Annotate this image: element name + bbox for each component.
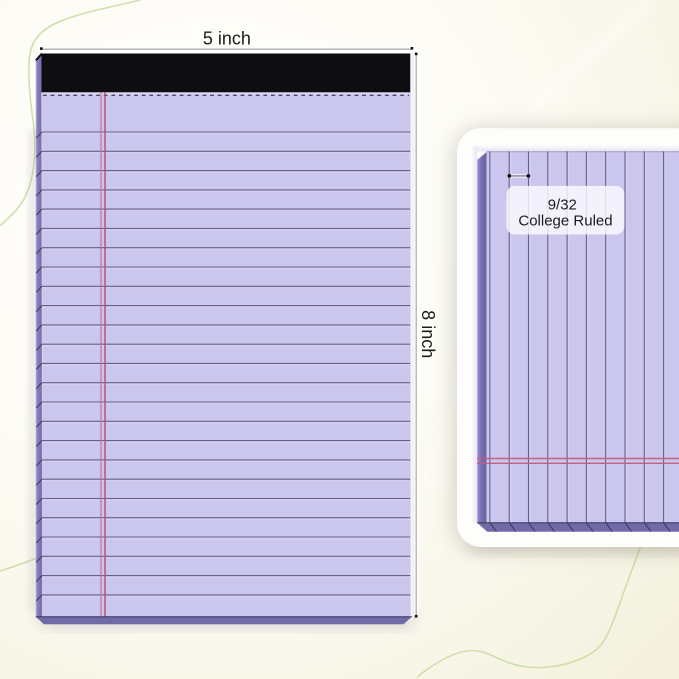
svg-text:5 inch: 5 inch (203, 29, 251, 49)
svg-text:College Ruled: College Ruled (518, 213, 612, 230)
svg-text:9/32: 9/32 (548, 197, 577, 214)
svg-text:8 inch: 8 inch (418, 310, 438, 358)
